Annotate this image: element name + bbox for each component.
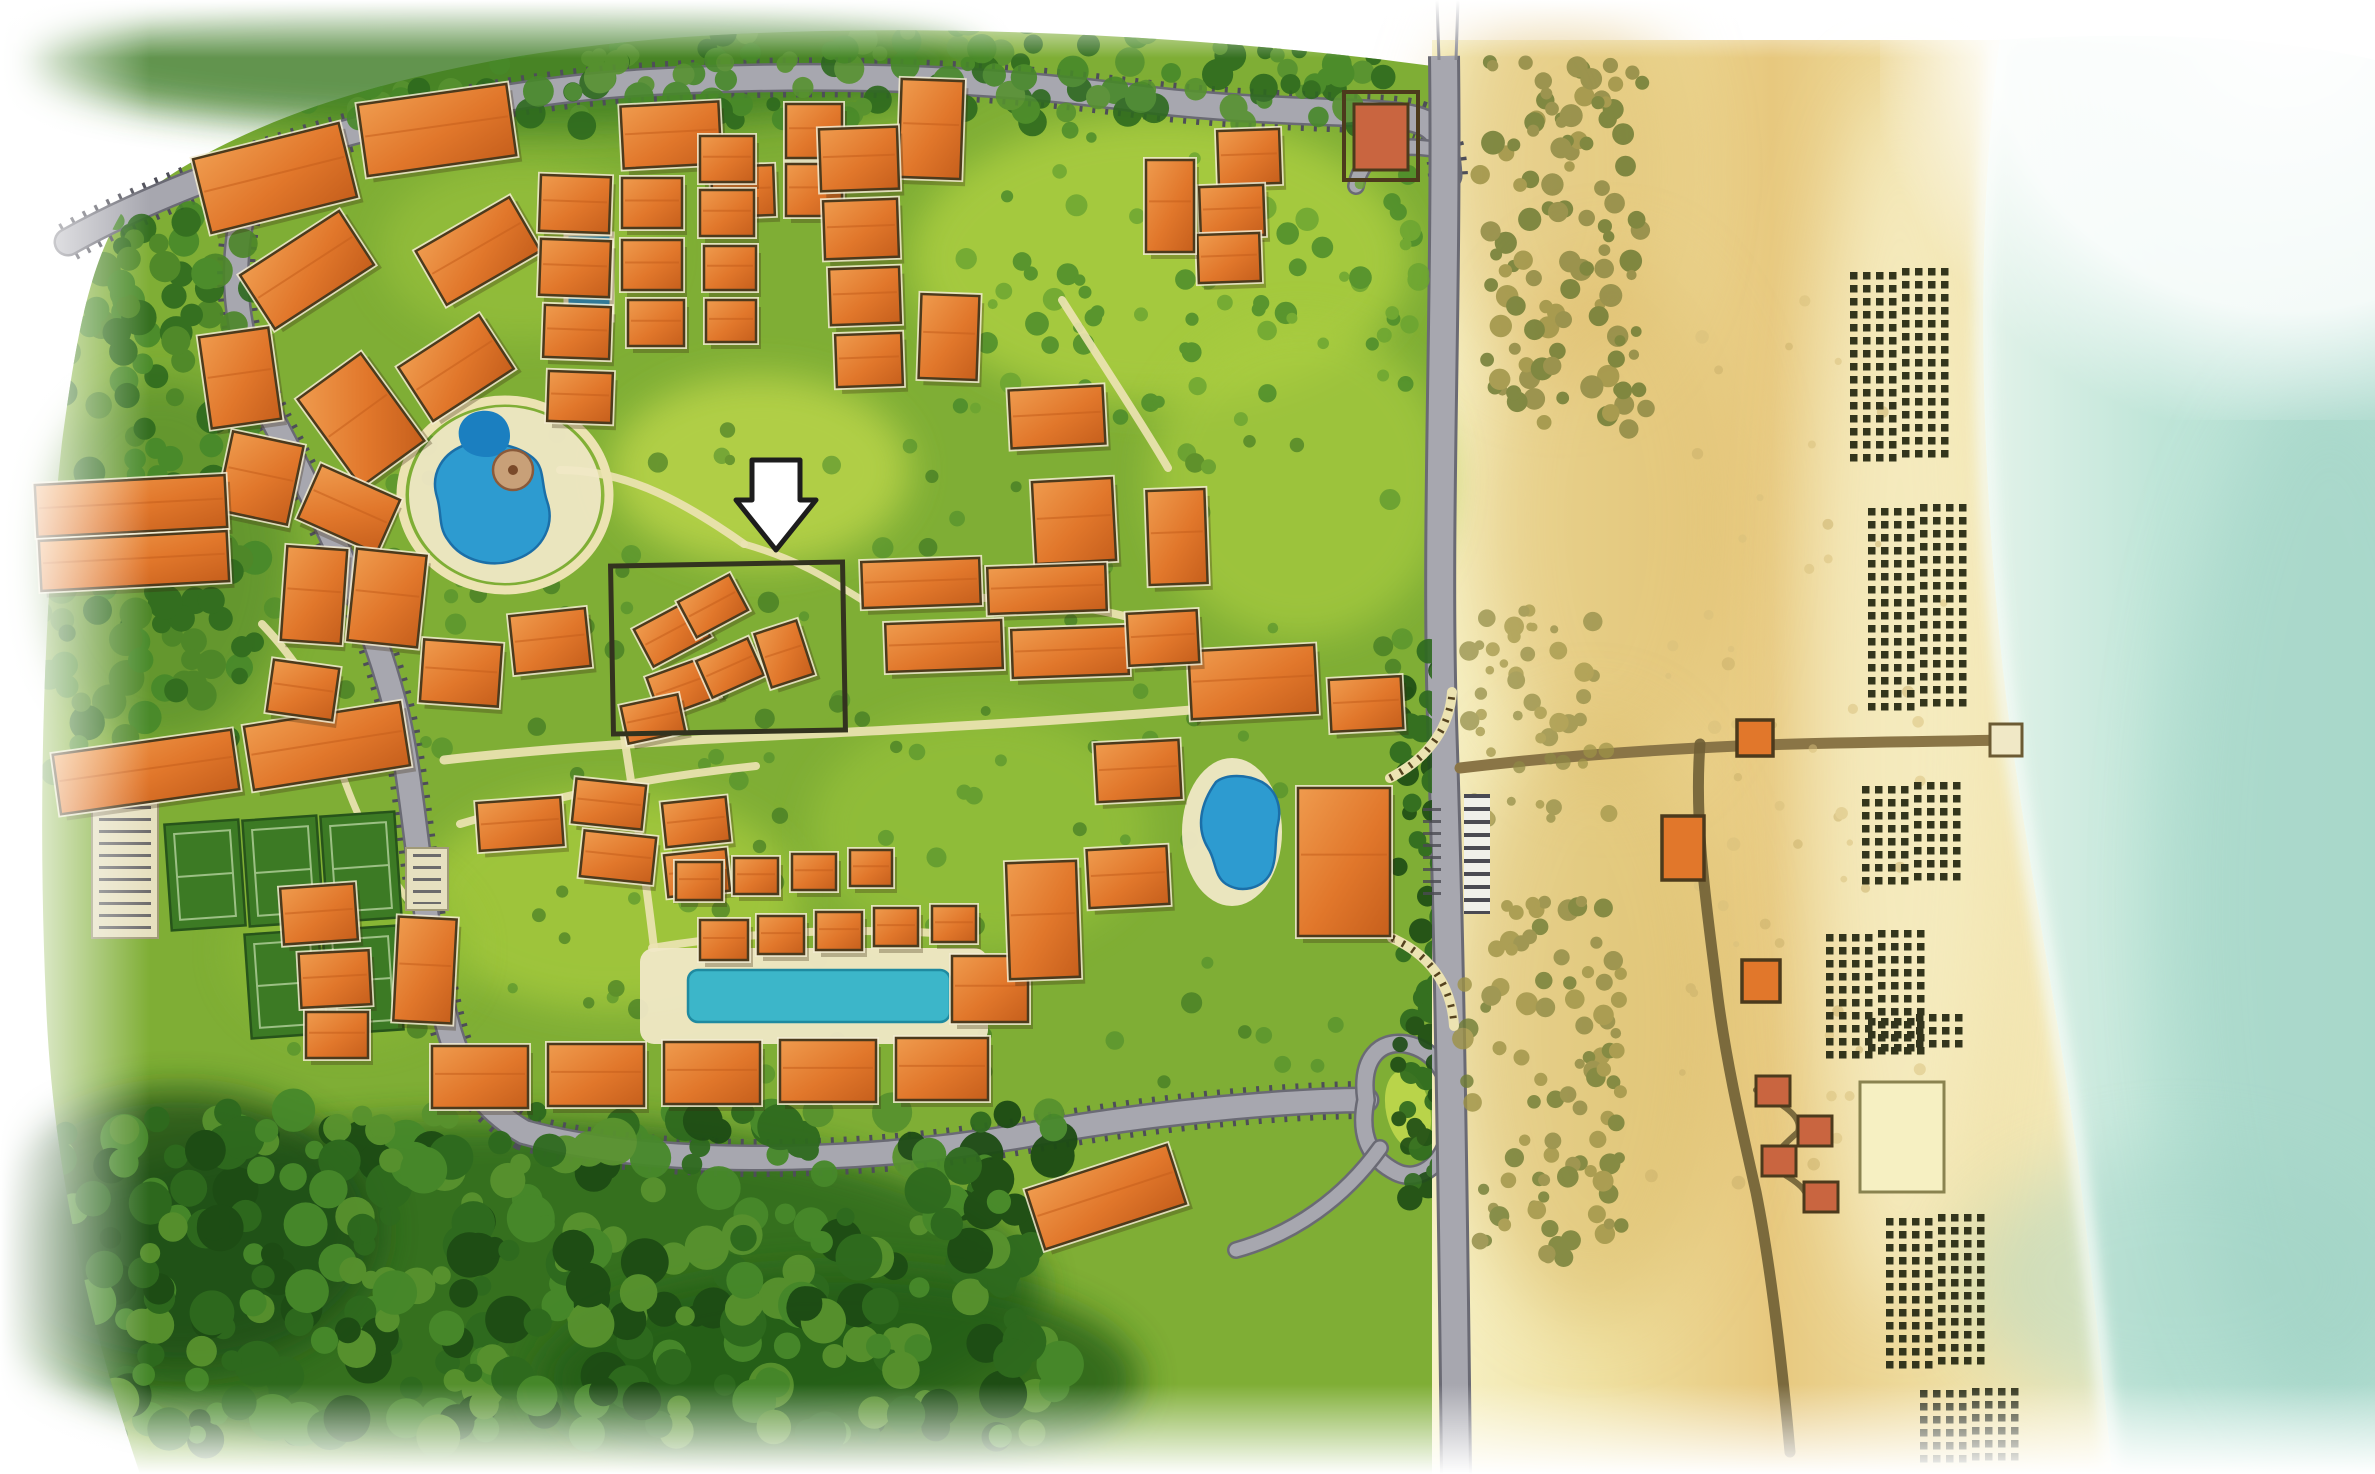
building [661, 1039, 765, 1111]
building [1091, 737, 1186, 810]
building [344, 545, 432, 655]
building [813, 909, 867, 957]
building [871, 905, 923, 953]
building [390, 913, 462, 1030]
site-plan-canvas [0, 0, 2375, 1474]
building [1008, 623, 1134, 685]
building [1214, 126, 1286, 192]
building [697, 187, 759, 243]
building [429, 1043, 533, 1115]
lap-pool [688, 970, 950, 1022]
building [673, 859, 727, 907]
building [1143, 157, 1199, 259]
lap-pool-complex [640, 948, 988, 1044]
beach-hut [1804, 1182, 1838, 1212]
building [1194, 230, 1266, 290]
building [506, 605, 597, 681]
pier-deck [1990, 724, 2022, 756]
building [777, 1037, 881, 1109]
building [826, 264, 906, 333]
building [847, 847, 897, 893]
beach-hut [1756, 1076, 1790, 1106]
building [545, 1041, 649, 1113]
building [832, 330, 908, 395]
beach-pavilion [1742, 960, 1780, 1002]
building [1185, 641, 1323, 726]
building [295, 947, 376, 1015]
building [1295, 785, 1395, 943]
tennis-court [164, 820, 245, 931]
beach-hut [1798, 1116, 1832, 1146]
building [703, 297, 761, 349]
building [697, 917, 753, 967]
building [659, 793, 736, 854]
building [576, 827, 661, 891]
building [882, 617, 1008, 679]
building [416, 636, 507, 714]
building [619, 237, 687, 297]
building [568, 775, 651, 837]
building [858, 555, 986, 615]
building [277, 543, 352, 651]
building [619, 175, 687, 235]
building [625, 297, 689, 353]
building [816, 123, 904, 198]
building [196, 324, 287, 436]
building [263, 656, 345, 728]
building [1326, 673, 1409, 739]
building [303, 1009, 373, 1065]
beach-pavilion [1737, 720, 1773, 756]
event-lawn [1860, 1082, 1944, 1192]
building [915, 291, 984, 387]
building [1005, 382, 1110, 455]
building [536, 172, 616, 241]
building [540, 302, 616, 367]
building [473, 794, 569, 858]
beach-hut [1762, 1146, 1796, 1176]
building [277, 880, 363, 952]
building [731, 855, 783, 901]
building [1083, 843, 1174, 916]
beach-pavilion [1662, 816, 1704, 880]
resort-site-plan [0, 0, 2375, 1474]
building [697, 133, 759, 189]
building [929, 903, 981, 949]
building [1029, 475, 1122, 571]
building [544, 368, 618, 430]
building [893, 1035, 993, 1107]
lagoon-pool-lobe [459, 411, 510, 457]
building [1143, 486, 1213, 592]
building [895, 76, 969, 186]
building [789, 851, 841, 897]
coastal-highway [1440, 56, 1456, 1474]
building [1124, 607, 1205, 673]
building [701, 243, 761, 297]
lagoon-pool [435, 443, 550, 564]
spa-center [508, 465, 518, 475]
gatehouse [1354, 104, 1408, 170]
east-pool-complex [1182, 758, 1282, 906]
building [820, 196, 904, 267]
building [755, 913, 809, 961]
building [536, 236, 616, 305]
building [984, 561, 1112, 621]
building [1003, 858, 1085, 987]
